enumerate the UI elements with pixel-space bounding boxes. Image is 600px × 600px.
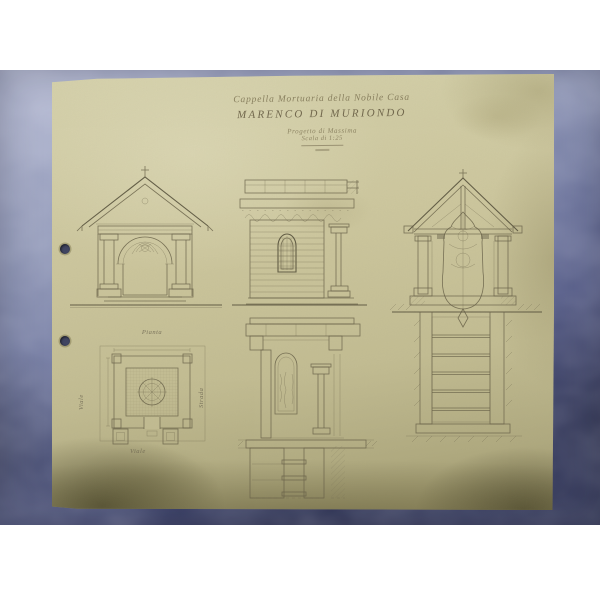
paper-grain-overlay <box>52 74 554 510</box>
drawing-sheet: Cappella Mortuaria della Nobile Casa MAR… <box>52 74 554 510</box>
plan-label-bottom: Viale <box>130 448 146 455</box>
photograph-of-architectural-drawing: Cappella Mortuaria della Nobile Casa MAR… <box>0 0 600 600</box>
plan-label-top: Pianta <box>130 329 174 336</box>
plan-label-right: Strada <box>198 388 205 408</box>
pencil-drawings <box>52 74 554 510</box>
plan-label-left: Viale <box>78 394 85 410</box>
